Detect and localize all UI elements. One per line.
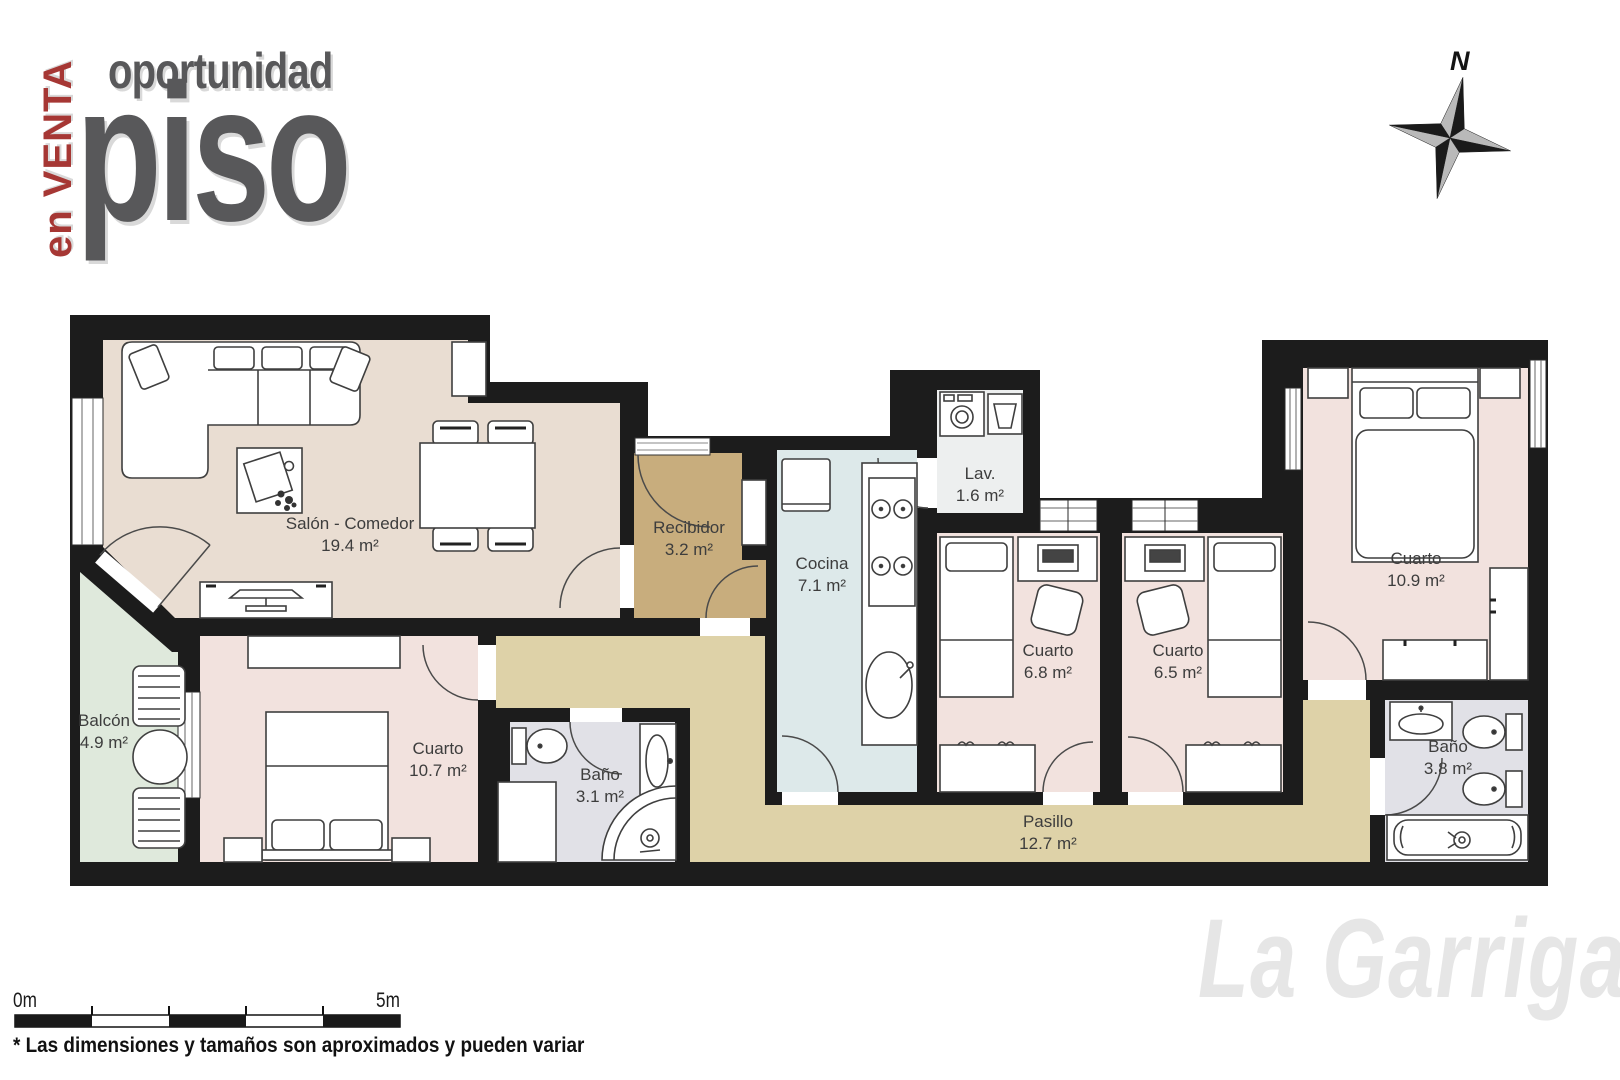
lavadero-fixtures [940, 392, 1022, 436]
scale-start-label: 0m [13, 989, 37, 1013]
room-label-pasillo: Pasillo12.7 m² [1019, 811, 1077, 855]
room-label-cuarto-65: Cuarto6.5 m² [1152, 640, 1203, 684]
window-cuarto109-left [1285, 388, 1301, 470]
floorplan-flyer: en VENTA oportunidad piso N Salón - Come… [0, 0, 1620, 1080]
disclaimer-text: * Las dimensiones y tamaños son aproxima… [13, 1034, 584, 1058]
salon-cabinet [452, 342, 486, 396]
room-label-cuarto-68: Cuarto6.8 m² [1022, 640, 1073, 684]
entrance-door [635, 438, 710, 455]
room-label-cuarto-109: Cuarto10.9 m² [1387, 548, 1445, 592]
room-label-salon: Salón - Comedor19.4 m² [286, 513, 415, 557]
room-label-cuarto-107: Cuarto10.7 m² [409, 738, 467, 782]
window-cuarto109-right [1530, 360, 1546, 448]
room-label-balcon: Balcón4.9 m² [78, 710, 130, 754]
balcony-chair [133, 788, 185, 848]
room-label-bano-31: Baño3.1 m² [576, 764, 624, 808]
balcony-table [133, 730, 187, 784]
compass-north-label: N [1450, 46, 1470, 77]
window-cuarto68 [1040, 500, 1097, 531]
window-cuarto65 [1132, 500, 1198, 531]
tv-sideboard [200, 582, 332, 618]
scale-bar [15, 1006, 400, 1027]
room-label-bano-38: Baño3.8 m² [1424, 736, 1472, 780]
agency-watermark: La Garriga [1198, 894, 1620, 1023]
room-label-recibidor: Recibidor3.2 m² [653, 517, 725, 561]
coffee-table [237, 448, 302, 513]
scale-end-label: 5m [376, 989, 400, 1013]
title-line2: piso [76, 56, 347, 251]
balcony-chair [133, 666, 185, 726]
dining-set [420, 421, 535, 551]
sale-banner: en VENTA [36, 60, 81, 258]
compass-rose [1389, 77, 1510, 198]
room-label-lavadero: Lav.1.6 m² [956, 463, 1004, 507]
window-salon [72, 398, 103, 545]
room-label-cocina: Cocina7.1 m² [796, 553, 849, 597]
recibidor-closet [742, 480, 766, 545]
